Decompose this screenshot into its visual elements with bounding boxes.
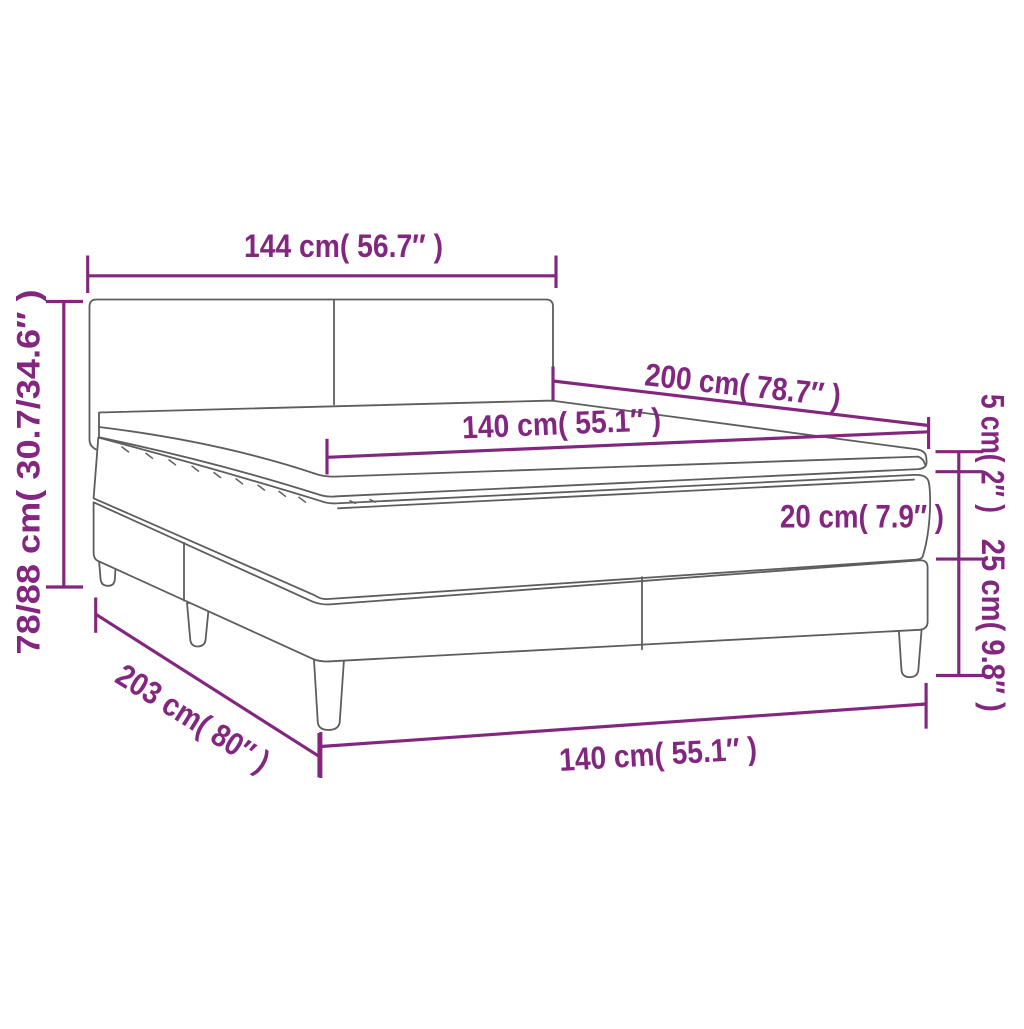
svg-text:25 cm( 9.8″ ): 25 cm( 9.8″ ) xyxy=(975,539,1011,712)
svg-text:144 cm( 56.7″ ): 144 cm( 56.7″ ) xyxy=(244,228,443,264)
svg-text:78/88 cm( 30.7/34.6″ ): 78/88 cm( 30.7/34.6″ ) xyxy=(11,290,47,655)
svg-text:20 cm( 7.9″ ): 20 cm( 7.9″ ) xyxy=(780,499,944,535)
svg-text:5 cm( 2″ ): 5 cm( 2″ ) xyxy=(975,394,1011,513)
